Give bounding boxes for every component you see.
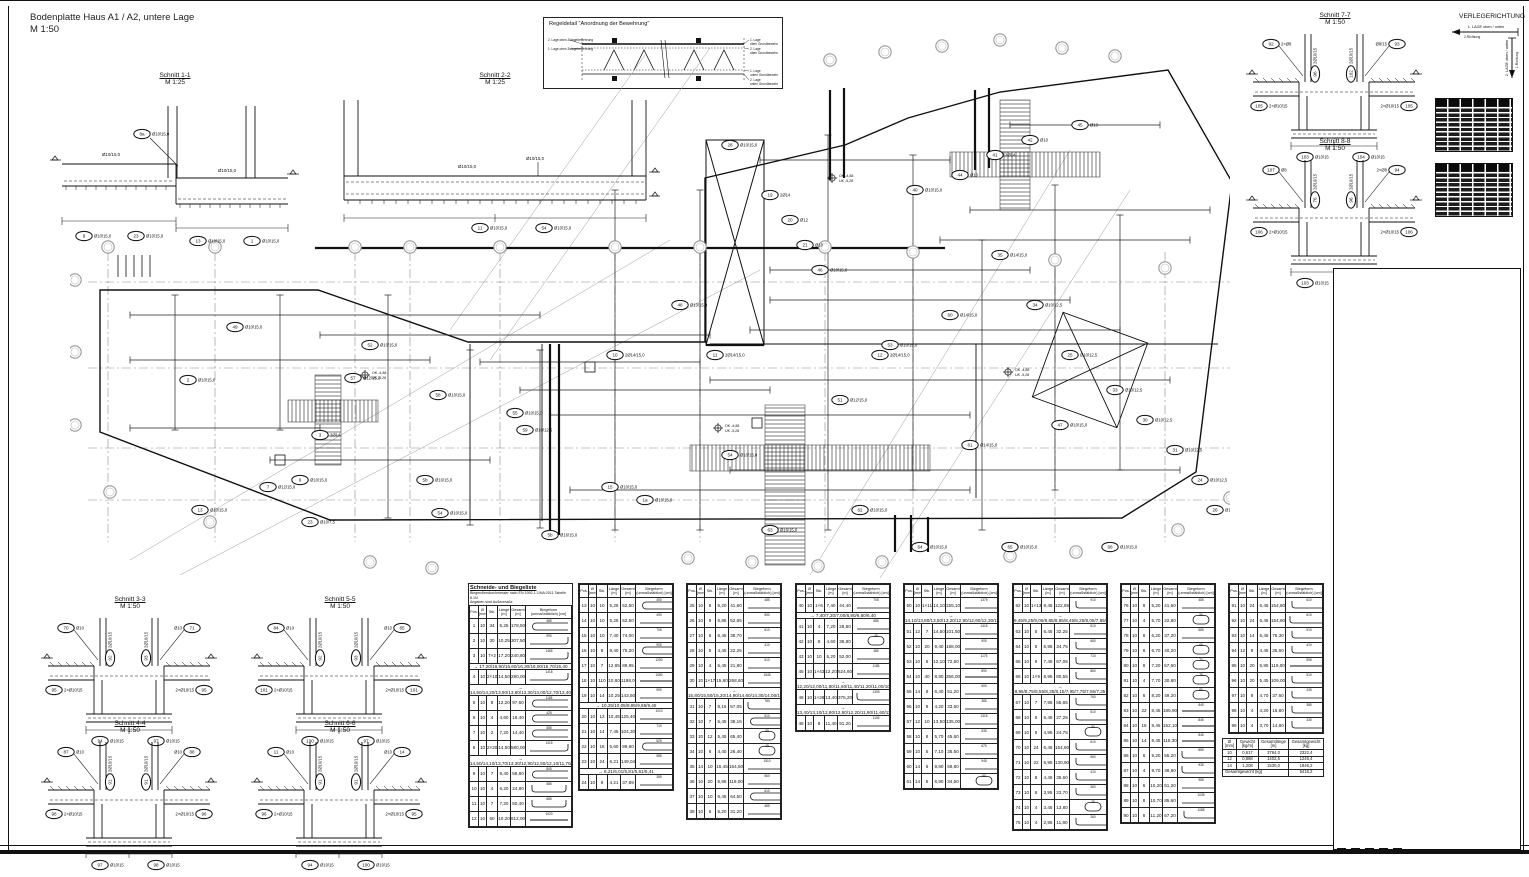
svg-text:2Ø10/15: 2Ø10/15	[144, 631, 149, 648]
pos-bubble: 11Ø10/15,0	[472, 223, 508, 232]
elevation-mark	[251, 778, 263, 782]
pos-bubble: 912Ø10/15	[105, 755, 114, 790]
svg-text:610: 610	[1306, 598, 1312, 602]
pos-bubble: 71Ø10	[174, 623, 200, 632]
bend-shape-lo: 860	[1070, 669, 1107, 682]
svg-text:510: 510	[764, 658, 770, 662]
biegeliste-row: 721084,4535,60410	[1014, 770, 1107, 785]
pos-bubble: 952×Ø10/15	[385, 809, 422, 818]
biegeliste-col-header: Biegeform (unmaßstäblich) [cm]	[636, 585, 673, 598]
pos-bubble: 912Ø10/15	[315, 755, 324, 790]
svg-text:535: 535	[981, 729, 987, 733]
biegeliste-row: 9310145,4576,30510	[1230, 628, 1323, 643]
bend-shape-hr: 485	[744, 804, 781, 817]
svg-text:2Ø10/15: 2Ø10/15	[108, 755, 113, 772]
svg-text:Ø10/15: Ø10/15	[1315, 281, 1329, 286]
svg-text:Ø10/15,0: Ø10/15,0	[102, 152, 121, 157]
biegeliste-col-header: Pos.	[688, 585, 697, 598]
pos-bubble: 1012×Ø10/15	[385, 685, 422, 694]
pos-bubble: 8aØ10/15,0	[134, 129, 170, 138]
svg-text:12: 12	[877, 353, 883, 358]
svg-text:Ø10/15: Ø10/15	[320, 863, 334, 868]
bend-shape-hr: 385	[636, 775, 673, 788]
svg-text:Ø10/15,0: Ø10/15,0	[146, 234, 164, 239]
svg-text:OK -4,88: OK -4,88	[1015, 368, 1029, 372]
biegeliste-col-header: Pos.	[905, 585, 914, 598]
pos-bubble: 962Ø10/15	[1310, 47, 1319, 82]
svg-text:11: 11	[713, 353, 718, 358]
pos-bubble: 11Ø10	[268, 747, 295, 756]
svg-text:Ø10/15,0: Ø10/15,0	[1070, 423, 1088, 428]
svg-text:2Ø10/15: 2Ø10/15	[318, 755, 323, 772]
axis-bubble	[1159, 262, 1171, 274]
svg-text:Ø10/12,5: Ø10/12,5	[1225, 508, 1230, 513]
pos-bubble: 42Ø10	[1022, 135, 1049, 144]
svg-text:11: 11	[274, 750, 279, 755]
biegeliste-col-header: Stk.	[487, 605, 498, 618]
section-schnitt-6-6: Schnitt 6-6M 1:5011Ø1014Ø10962×Ø10/15952…	[250, 720, 430, 875]
svg-text:Ø16/15,0: Ø16/15,0	[435, 478, 453, 483]
biegeliste-row: 12106010,20612,001020	[470, 811, 572, 826]
svg-text:54: 54	[727, 453, 733, 458]
svg-text:55: 55	[765, 729, 769, 733]
svg-text:102: 102	[1349, 70, 1354, 78]
biegeliste-col-header: Ø [mm]	[1023, 585, 1031, 598]
svg-text:60: 60	[947, 313, 953, 318]
bend-shape-lo: 660	[1070, 639, 1107, 652]
svg-text:47: 47	[1057, 423, 1063, 428]
pos-bubble: 7Ø12/15,0	[260, 482, 296, 491]
svg-text:Ø10/15,0: Ø10/15,0	[262, 239, 280, 244]
svg-text:64: 64	[917, 545, 923, 550]
bend-shape-hr: 585	[636, 754, 673, 767]
svg-text:760: 760	[1090, 695, 1096, 699]
svg-text:1175: 1175	[981, 654, 988, 658]
svg-text:560: 560	[764, 774, 770, 778]
bend-shape-u: 525	[636, 739, 673, 752]
svg-text:600: 600	[981, 684, 987, 688]
svg-text:Ø10/15,0: Ø10/15,0	[690, 303, 708, 308]
svg-text:260: 260	[1090, 815, 1096, 819]
svg-text:2Ø10/15: 2Ø10/15	[1349, 47, 1354, 64]
elevation-mark	[415, 654, 427, 658]
svg-text:5b: 5b	[547, 533, 553, 538]
bend-shape-hr: 585	[1178, 628, 1215, 641]
bend-shape-u: 485	[526, 619, 572, 632]
pos-bubble: 922Ø10/15	[105, 631, 114, 666]
span-line	[320, 332, 710, 339]
svg-text:2×Ø10/15: 2×Ø10/15	[274, 812, 293, 817]
svg-text:Ø10/15,0: Ø10/15,0	[450, 511, 468, 516]
pos-bubble: 30Ø10/12,5	[1137, 415, 1173, 424]
axis-bubble	[994, 34, 1006, 46]
svg-text:Ø10/15,0: Ø10/15,0	[198, 378, 216, 383]
section-title: Schnitt 6-6M 1:50	[250, 720, 430, 734]
svg-text:Ø10/15,0: Ø10/15,0	[490, 226, 508, 231]
biegeliste-row: 5410408,90356,00890	[905, 669, 998, 684]
svg-text:845: 845	[1198, 718, 1204, 722]
biegeliste-row: 741043,4513,8035	[1014, 800, 1107, 815]
svg-text:Ø10/15,0: Ø10/15,0	[870, 508, 888, 513]
svg-text:560: 560	[1090, 755, 1096, 759]
axis-bubble	[349, 241, 361, 253]
summary-col-header: Gewicht [kg/m]	[1237, 739, 1259, 750]
pos-bubble: 962×Ø10/15	[256, 809, 293, 818]
svg-text:96: 96	[1313, 71, 1318, 77]
svg-text:44: 44	[957, 173, 963, 178]
svg-text:610: 610	[1090, 740, 1096, 744]
biegeliste-row: 861069,2055,20885	[1122, 748, 1215, 763]
svg-text:1010: 1010	[655, 709, 662, 713]
biegeliste-row: 111077,2050,40685	[470, 796, 572, 811]
svg-text:710: 710	[1090, 654, 1096, 658]
svg-text:19: 19	[767, 193, 773, 198]
span-line	[760, 157, 950, 164]
svg-text:Ø10: Ø10	[286, 626, 295, 631]
elevation-mark	[50, 156, 61, 160]
biegeliste-row: 510812,2097,601185	[470, 695, 572, 710]
biegeliste-col-header: Pos.	[1122, 585, 1131, 598]
biegeliste-row: 981044,2016,80385	[1230, 703, 1323, 718]
bend-shape-lo: 385	[1286, 703, 1323, 716]
svg-text:Ø12/15,0: Ø12/15,0	[278, 485, 296, 490]
svg-text:6: 6	[299, 478, 302, 483]
axis-bubble	[104, 486, 116, 498]
svg-text:Ø12/15,0: Ø12/15,0	[363, 376, 381, 381]
svg-text:80: 80	[1199, 688, 1203, 692]
svg-text:Ø10/15,0: Ø10/15,0	[930, 545, 948, 550]
axis-bubble	[824, 54, 836, 66]
bend-shape-ri: 50	[1070, 725, 1107, 738]
pos-bubble: 25Ø10/12,5	[1062, 350, 1098, 359]
svg-text:2×Ø10/15: 2×Ø10/15	[274, 688, 293, 693]
svg-text:Ø10/15,0: Ø10/15,0	[152, 132, 170, 137]
pos-bubble: 942×Ø8	[1377, 165, 1406, 174]
svg-text:1415: 1415	[545, 670, 552, 674]
biegeliste-row: 1410105,2552,50490	[580, 613, 673, 628]
svg-text:1415: 1415	[545, 741, 552, 745]
svg-text:Ø10/15,0: Ø10/15,0	[925, 188, 943, 193]
bend-shape-hr: 990	[526, 634, 572, 647]
svg-text:96: 96	[261, 812, 267, 817]
svg-text:510: 510	[1306, 628, 1312, 632]
biegeliste-row: 2103010,25307,50990	[470, 633, 572, 648]
pos-bubble: 49Ø10/15,0	[227, 322, 263, 331]
svg-text:485: 485	[873, 649, 879, 653]
bend-shape-hr: 1415	[526, 670, 572, 683]
pos-bubble: 62Ø10/15,0	[852, 505, 888, 514]
svg-text:OK -4,88: OK -4,88	[725, 424, 739, 428]
axis-bubble	[70, 419, 81, 431]
svg-text:1.Richtung: 1.Richtung	[1515, 52, 1519, 68]
bend-shape-hr: 1010	[636, 709, 673, 722]
svg-text:360: 360	[1090, 785, 1096, 789]
bend-shape-ri: 35	[1070, 800, 1107, 813]
biegeliste-row: 2110147,45104,30710	[580, 724, 673, 739]
svg-text:2Ø14: 2Ø14	[780, 193, 791, 198]
bend-shape-hr: 560	[744, 774, 781, 787]
bend-shape-lo: 710	[1070, 654, 1107, 667]
biegeliste-table-5: Pos.Ø [mm]Stk.Länge [m]Gesamt [m]Biegefo…	[903, 583, 999, 790]
bend-shape-hr: 675	[961, 744, 998, 757]
biegeliste-row: 971084,7037,60435	[1230, 688, 1323, 703]
section-title: Schnitt 2-2M 1:25	[330, 72, 660, 86]
axis-bubble	[1070, 546, 1082, 558]
svg-text:2. LAGE oben / unten: 2. LAGE oben / unten	[1505, 40, 1509, 77]
svg-text:42: 42	[1027, 138, 1033, 143]
svg-text:410: 410	[764, 643, 770, 647]
svg-text:101: 101	[260, 688, 268, 693]
bend-shape-lo: 410	[1070, 770, 1107, 783]
svg-text:34: 34	[1032, 303, 1038, 308]
pos-bubble: 1Ø10/15,0	[244, 236, 280, 245]
svg-text:780: 780	[764, 699, 770, 703]
elevation-mark	[251, 654, 263, 658]
axis-bubble	[404, 241, 416, 253]
rebar-hatch-band	[765, 405, 805, 565]
svg-text:Ø10: Ø10	[970, 173, 979, 178]
biegeliste-row: 3610205,95119,00560	[688, 774, 781, 789]
svg-text:87: 87	[63, 750, 69, 755]
biegeliste-col-header: Gesamt [m]	[729, 585, 744, 598]
biegeliste-table-3: Pos.Ø [mm]Stk.Länge [m]Gesamt [m]Biegefo…	[686, 583, 782, 820]
svg-text:860: 860	[1090, 669, 1096, 673]
svg-text:1315: 1315	[980, 714, 987, 718]
biegeliste-row: 291045,4521,80510	[688, 658, 781, 673]
biegeliste-col-header: Pos.	[1230, 585, 1239, 598]
axis-bubble	[907, 246, 919, 258]
verlegerichtung-title: VERLEGERICHTUNG	[1459, 13, 1525, 20]
section-title: Schnitt 3-3M 1:50	[40, 596, 220, 610]
svg-text:2Ø10/15: 2Ø10/15	[1349, 173, 1354, 190]
svg-text:51: 51	[837, 398, 843, 403]
pos-bubble: 1052×Ø10/15	[1251, 101, 1288, 110]
biegeliste-row: 4810811,4091,201105	[797, 716, 890, 731]
biegeliste-note-row: → 17,20/16,90/16,60/16,30/16,00/15,70/15…	[470, 663, 572, 669]
biegeliste-row: 271066,4538,70610	[688, 628, 781, 643]
svg-text:525: 525	[656, 739, 662, 743]
svg-text:88: 88	[189, 750, 195, 755]
regeldetail-title: Regeldetail "Anordnung der Bewehrung"	[549, 21, 782, 27]
summary-row: 100,6173764,02322,4	[1223, 750, 1324, 757]
biegeliste-col-header: Ø [mm]	[914, 585, 922, 598]
pit-section-svg: 11Ø1014Ø10962×Ø10/15952×Ø10/15912Ø10/159…	[250, 734, 430, 872]
svg-text:Ø10/15: Ø10/15	[376, 863, 390, 868]
biegeliste-col-header: Pos.	[470, 605, 479, 618]
pos-bubble: 112Ø14/15,0	[707, 350, 745, 359]
svg-text:510: 510	[764, 714, 770, 718]
biegeliste-col-header: Gesamt [m]	[511, 605, 526, 618]
pos-bubble: 54Ø10/15,0	[432, 508, 468, 517]
pos-bubble: 13Ø10/15,0	[190, 236, 226, 245]
svg-text:Ø10: Ø10	[815, 243, 824, 248]
biegeliste-col-header: Gesamt [m]	[946, 585, 961, 598]
svg-text:1510: 1510	[763, 759, 770, 763]
bend-shape-ri: 45	[744, 744, 781, 757]
pos-bubble: 98Ø10/15	[148, 860, 181, 869]
svg-text:1545: 1545	[763, 673, 770, 677]
svg-text:13: 13	[195, 239, 201, 244]
bend-shape-hr: 600	[961, 684, 998, 697]
pos-bubble: 64Ø10/15,0	[912, 542, 948, 551]
section-title: Schnitt 1-1M 1:25	[50, 72, 300, 86]
svg-text:35: 35	[1091, 800, 1095, 804]
bend-shape-hr: 385	[961, 699, 998, 712]
bend-shape-hl: 935	[1178, 763, 1215, 776]
bend-shape-hr: 1250	[636, 658, 673, 671]
biegeliste-row: 801087,2057,6070	[1122, 658, 1215, 673]
axis-bubble	[876, 556, 888, 568]
pos-bubble: 912Ø10/15	[351, 755, 360, 790]
pos-bubble: 100Ø10/15	[358, 860, 391, 869]
axis-bubble	[1109, 50, 1121, 62]
biegeliste-row: 57121013,50135,001315	[905, 714, 998, 729]
svg-text:21: 21	[802, 243, 808, 248]
svg-text:705: 705	[656, 628, 662, 632]
pos-bubble: 53Ø10/15,0	[882, 340, 918, 349]
svg-text:1415: 1415	[980, 624, 987, 628]
svg-text:40: 40	[912, 188, 918, 193]
sheet-title: Bodenplatte Haus A1 / A2, untere Lage	[30, 12, 194, 24]
svg-text:UK -5,28: UK -5,28	[725, 429, 739, 433]
biegeliste-row: 3107×217,20240,801465	[470, 648, 572, 663]
span-line	[550, 412, 970, 419]
pos-bubble: 762Ø10/15	[1310, 173, 1319, 208]
pos-bubble: 85Ø10	[384, 623, 410, 632]
biegeliste-row: 281054,4522,25410	[688, 643, 781, 658]
pos-bubble: 87Ø10	[58, 747, 85, 756]
bend-shape-hr: 485	[853, 649, 890, 662]
bend-shape-hr: 705	[853, 598, 890, 611]
verlegerichtung: VERLEGERICHTUNG1. LAGE oben / unten2.Ric…	[1438, 8, 1526, 88]
bend-shape-ri: 55	[1178, 613, 1215, 626]
bend-shape-lo: 410	[1286, 643, 1323, 656]
pos-bubble: 59Ø10/12,5	[517, 425, 553, 434]
pos-bubble: 103Ø10/15	[1297, 278, 1330, 287]
svg-text:Ø14/15,0: Ø14/15,0	[960, 313, 978, 318]
biegeliste-row: 821068,2049,2080	[1122, 688, 1215, 703]
svg-text:2×Ø10/15: 2×Ø10/15	[1269, 104, 1288, 109]
biegeliste-col-header: Biegeform (unmaßstäblich) [cm]	[1286, 585, 1323, 598]
biegeliste-col-header: Länge [m]	[716, 585, 729, 598]
pos-bubble: 962Ø10/15	[1346, 173, 1355, 208]
biegeliste-row: 5112714,50101,501415	[905, 624, 998, 639]
bend-shape-hr: 985	[1178, 778, 1215, 791]
biegeliste-row: 7110225,95130,90560	[1014, 755, 1107, 770]
span-line	[1117, 215, 1124, 470]
svg-text:Ø10: Ø10	[1090, 123, 1099, 128]
pos-bubble: 24Ø10/12,5	[1192, 475, 1228, 484]
biegeliste-note-row: → 13,40/13,10/12,80/12,50/12,20/11,90/11…	[797, 705, 890, 716]
pit-section-svg: 87Ø1088Ø10962×Ø10/15962×Ø10/15912Ø10/159…	[40, 734, 220, 872]
biegeliste-row: 35141015,45154,501510	[688, 759, 781, 774]
svg-text:Ø10: Ø10	[384, 750, 393, 755]
bend-shape-hr: 685	[853, 619, 890, 632]
svg-text:Ø10/12,5: Ø10/12,5	[1185, 448, 1203, 453]
biegeliste-row: 561084,2033,60385	[905, 699, 998, 714]
svg-text:OK -4,88: OK -4,88	[839, 174, 853, 178]
small-opening	[585, 362, 595, 372]
bend-shape-hr: 535	[961, 729, 998, 742]
biegeliste-col-header: Länge [m]	[1150, 585, 1163, 598]
svg-text:70: 70	[1199, 658, 1203, 662]
svg-text:96: 96	[51, 812, 57, 817]
biegeliste-col-header: Stk.	[1247, 585, 1258, 598]
svg-text:91: 91	[354, 779, 359, 785]
svg-text:Ø10/15,0: Ø10/15,0	[448, 393, 466, 398]
biegeliste-row: 731063,9523,70360	[1014, 785, 1107, 800]
svg-text:1085: 1085	[1197, 808, 1204, 812]
svg-text:Ø10/15,0: Ø10/15,0	[620, 485, 638, 490]
biegeliste-row: 9510205,95119,00595	[1230, 658, 1323, 673]
pos-bubble: 922Ø10/15	[315, 631, 324, 666]
svg-text:610: 610	[764, 628, 770, 632]
biegeliste-row: 321075,4538,15510	[688, 714, 781, 729]
pos-bubble: 46Ø10/15,0	[812, 265, 848, 274]
svg-text:1a: 1a	[642, 498, 648, 503]
biegeliste-row: 46101×2813,40375,201305	[797, 690, 890, 705]
biegeliste-row: 8102×2014,50580,001415	[470, 740, 572, 755]
svg-text:95: 95	[201, 688, 207, 693]
svg-text:1: 1	[251, 239, 254, 244]
biegeliste-row: 8310228,45185,90845	[1122, 703, 1215, 718]
svg-text:485: 485	[764, 598, 770, 602]
svg-text:1035: 1035	[1197, 793, 1204, 797]
svg-text:Ø10/15,0: Ø10/15,0	[740, 453, 758, 458]
biegeliste-row: 1510107,4074,00705	[580, 628, 673, 643]
svg-text:1020: 1020	[545, 812, 552, 816]
biegeliste-row: 1710712,8589,951250	[580, 658, 673, 673]
svg-text:490: 490	[656, 613, 662, 617]
pos-bubble: 33Ø10/12,5	[1107, 385, 1143, 394]
pos-bubble: 23Ø10/15,0	[128, 231, 164, 240]
biegeliste-row: 181011010,801188,001080	[580, 673, 673, 688]
bend-shape-hr: 1375	[961, 598, 998, 611]
svg-text:1105: 1105	[873, 716, 880, 720]
biegeliste-col-header: Ø [mm]	[806, 585, 814, 598]
biegeliste-col-header: Länge [m]	[498, 605, 511, 618]
biegeliste-note-row: → 8,95/8,75/8,55/8,35/8,15/7,95/7,75/7,5…	[1014, 684, 1107, 695]
biegeliste-row: 5210209,40188,00905	[905, 639, 998, 654]
biegeliste-col-header: Biegeform (unmaßstäblich) [cm]	[853, 585, 890, 598]
svg-text:705: 705	[873, 598, 879, 602]
pos-bubble: 34Ø10/12,5	[1027, 300, 1063, 309]
svg-text:93: 93	[144, 655, 149, 661]
svg-text:OK -4,88: OK -4,88	[372, 371, 386, 375]
svg-text:990: 990	[546, 634, 552, 638]
slab-section-svg: Ø10/15,0Ø10/15,08aØ10/15,09Ø10/15,023Ø10…	[50, 86, 300, 246]
biegeliste-col-header: Biegeform (unmaßstäblich) [cm]	[1070, 585, 1107, 598]
svg-text:11: 11	[478, 226, 483, 231]
svg-text:Ø10/12,5: Ø10/12,5	[1155, 418, 1173, 423]
biegeliste-col-header: Ø [mm]	[589, 585, 597, 598]
svg-text:65: 65	[1199, 643, 1203, 647]
biegeliste-row: 3710106,4564,50610	[688, 789, 781, 804]
bend-shape-lo: 685	[526, 797, 572, 810]
svg-text:Ø10/15: Ø10/15	[110, 863, 124, 868]
svg-text:100: 100	[362, 863, 370, 868]
bend-shape-st: 890	[961, 669, 998, 682]
bend-shape-lo: 435	[1286, 688, 1323, 701]
bend-shape-ri: 55	[744, 729, 781, 742]
biegeliste-row: 241094,2137,89385	[580, 775, 673, 790]
svg-text:91: 91	[108, 779, 113, 785]
svg-text:1250: 1250	[655, 658, 662, 662]
axis-bubble	[682, 552, 694, 564]
biegeliste-row: 62101×139,45122,85910	[1014, 598, 1107, 613]
biegeliste-col-header: Pos.	[797, 585, 806, 598]
svg-text:Ø10/15,0: Ø10/15,0	[218, 168, 237, 173]
